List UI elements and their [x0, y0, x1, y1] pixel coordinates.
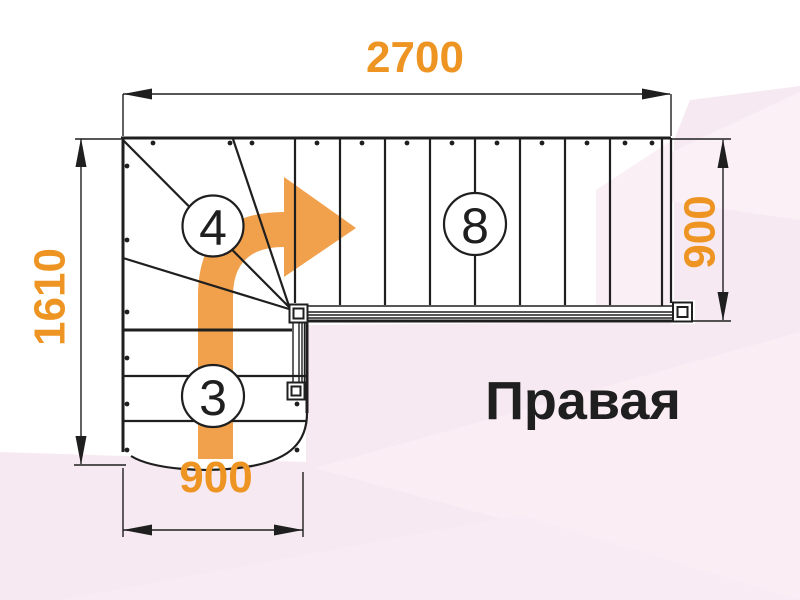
stair-plan-diagram: 4 8 3 2700 1610 900 900 [0, 0, 800, 600]
dimension-top-label: 2700 [366, 33, 464, 82]
newel-post-inner [678, 307, 688, 317]
dimension-bottom-label: 900 [179, 453, 252, 502]
lower-count-label: 3 [199, 370, 227, 426]
upper-count-label: 8 [461, 198, 489, 254]
newel-post-inner [294, 309, 304, 319]
direction-label: Правая [485, 371, 681, 431]
newel-post-inner [292, 387, 301, 396]
winder-count-label: 4 [199, 200, 227, 256]
dimension-left-label: 1610 [26, 248, 75, 346]
dimension-right-label: 900 [676, 195, 725, 268]
